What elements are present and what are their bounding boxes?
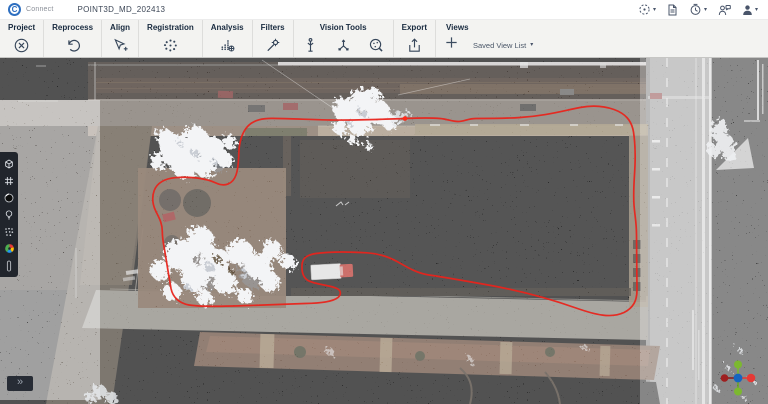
saved-view-list-label: Saved View List	[473, 41, 526, 50]
reprocess-icon[interactable]	[64, 37, 81, 54]
gizmo-up-handle[interactable]	[734, 361, 742, 369]
lighting-icon[interactable]	[3, 208, 16, 221]
ribbon-group-filters: Filters	[253, 20, 294, 57]
group-label: Align	[110, 23, 130, 32]
axes-icon[interactable]	[335, 37, 352, 54]
project-title: POINT3D_MD_202413	[77, 5, 165, 14]
feedback-icon[interactable]	[718, 4, 731, 16]
align-icon[interactable]	[112, 37, 129, 54]
ribbon-group-vision-tools: Vision Tools	[294, 20, 394, 57]
export-icon[interactable]	[406, 37, 423, 54]
group-label: Reprocess	[52, 23, 93, 32]
registration-icon[interactable]	[162, 37, 179, 54]
saved-view-list-dropdown[interactable]: Saved View List ▾	[473, 41, 533, 50]
caret-down-icon: ▾	[755, 7, 758, 13]
gizmo-down-handle[interactable]	[734, 388, 742, 396]
slider-icon[interactable]	[3, 259, 16, 272]
gizmo-right-handle[interactable]	[747, 374, 756, 383]
close-project-icon[interactable]	[13, 37, 30, 54]
point-cloud-scene	[0, 58, 768, 404]
group-label: Analysis	[211, 23, 244, 32]
cube-icon[interactable]	[3, 157, 16, 170]
expand-panel-button[interactable]: »	[7, 376, 33, 391]
ribbon-group-project: Project	[0, 20, 44, 57]
trajectory-start-point	[403, 116, 408, 121]
gizmo-center-handle[interactable]	[734, 374, 743, 383]
group-label: Project	[8, 23, 35, 32]
color-wheel-icon[interactable]	[3, 242, 16, 255]
group-label: Vision Tools	[320, 23, 367, 32]
grid-icon[interactable]	[3, 174, 16, 187]
analysis-icon[interactable]	[219, 37, 236, 54]
group-label: Export	[402, 23, 427, 32]
ribbon-group-registration: Registration	[139, 20, 203, 57]
point-speckle	[640, 58, 768, 404]
history-icon[interactable]: ▾	[689, 3, 707, 16]
ribbon-toolbar: Project Reprocess Align Registration	[0, 20, 768, 58]
ribbon-group-export: Export	[394, 20, 436, 57]
caret-down-icon: ▾	[530, 42, 533, 48]
titlebar-actions: ▾ ▾ ▾	[638, 3, 758, 16]
ribbon-group-reprocess: Reprocess	[44, 20, 102, 57]
title-bar: C Connect POINT3D_MD_202413 ▾ ▾	[0, 0, 768, 20]
filters-icon[interactable]	[264, 37, 281, 54]
gizmo-left-handle[interactable]	[721, 374, 729, 382]
ribbon-group-align: Align	[102, 20, 139, 57]
target-mode-icon[interactable]: ▾	[638, 3, 656, 16]
document-icon[interactable]	[667, 4, 678, 16]
add-view-icon[interactable]	[444, 35, 459, 55]
classification-icon[interactable]	[368, 37, 385, 54]
point-density-icon[interactable]	[3, 225, 16, 238]
view-tool-strip	[0, 152, 18, 277]
connect-logo-icon: C	[8, 3, 21, 16]
user-icon[interactable]: ▾	[742, 4, 758, 16]
application-window: C Connect POINT3D_MD_202413 ▾ ▾	[0, 0, 768, 404]
caret-down-icon: ▾	[653, 7, 656, 13]
group-label: Filters	[261, 23, 285, 32]
background-toggle-icon[interactable]	[3, 191, 16, 204]
app-name: Connect	[26, 6, 53, 13]
group-label: Views	[446, 23, 469, 32]
group-label: Registration	[147, 23, 194, 32]
scan-station-icon[interactable]	[302, 37, 319, 54]
caret-down-icon: ▾	[704, 7, 707, 13]
viewport-3d[interactable]: »	[0, 58, 768, 404]
ribbon-group-views: Views Saved View List ▾	[436, 20, 541, 57]
ribbon-group-analysis: Analysis	[203, 20, 253, 57]
